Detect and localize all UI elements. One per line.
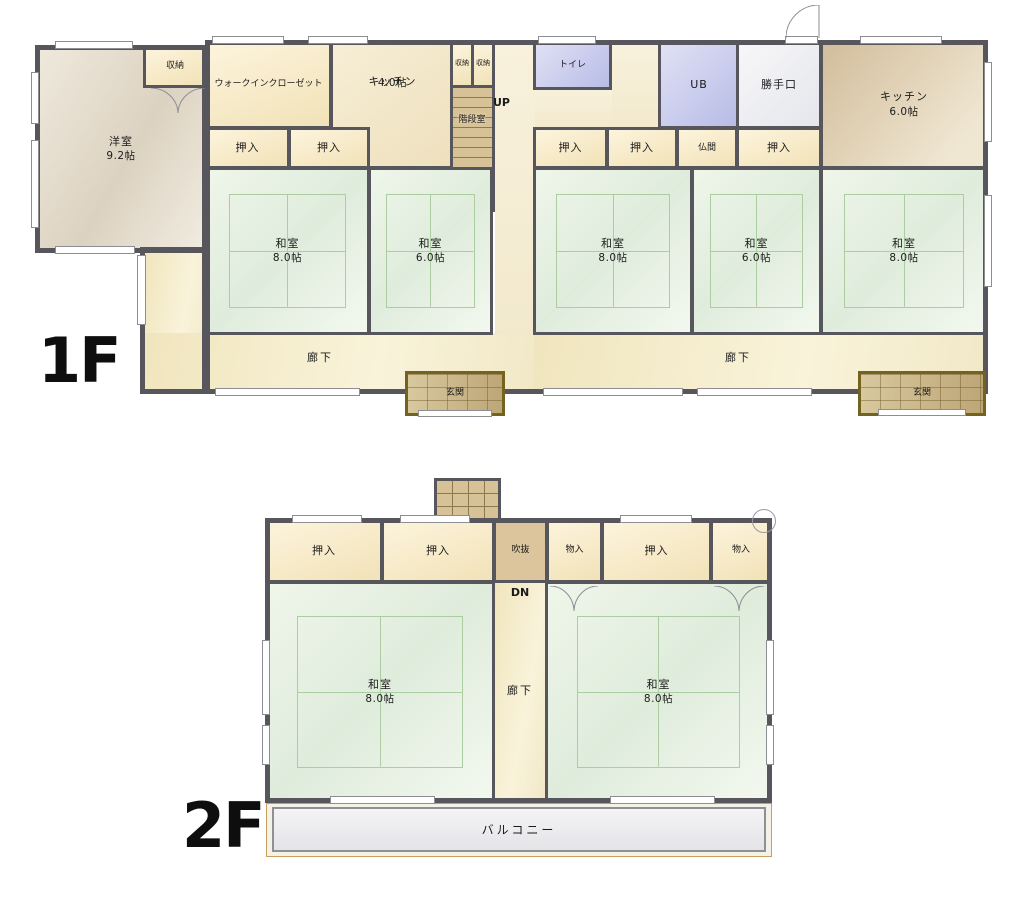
room-name: 収納 bbox=[476, 59, 490, 69]
room-name: 勝手口 bbox=[761, 77, 797, 92]
room-oshiire: 押入 bbox=[601, 518, 712, 583]
dn-label: DN bbox=[495, 586, 545, 599]
room-washitsu: 和室 8.0帖 bbox=[205, 167, 370, 335]
room-oshiire: 押入 bbox=[606, 127, 678, 169]
room-name: 和室 bbox=[419, 236, 443, 251]
balcony-sliding-door bbox=[330, 796, 435, 804]
door-arc bbox=[786, 5, 820, 39]
room-name: 押入 bbox=[630, 140, 654, 155]
room-size: 6.0帖 bbox=[889, 105, 918, 120]
entrance-sliding-door bbox=[878, 409, 966, 416]
room-name: 和室 bbox=[601, 236, 625, 251]
room-shuno-b: 収納 bbox=[471, 40, 495, 88]
room-size: 9.2帖 bbox=[106, 149, 135, 164]
entrance-sliding-door bbox=[418, 410, 492, 417]
room-oshiire: 押入 bbox=[265, 518, 383, 583]
room-name: 押入 bbox=[559, 140, 583, 155]
room-oshiire: 押入 bbox=[288, 127, 370, 169]
window bbox=[215, 388, 360, 396]
room-name: 吹抜 bbox=[510, 544, 530, 557]
room-shuno-top: 収納 bbox=[143, 45, 207, 88]
room-name: 押入 bbox=[426, 543, 450, 558]
room-stairwell bbox=[450, 85, 495, 170]
room-name: 玄関 bbox=[446, 387, 464, 400]
corridor-label: 廊下 bbox=[270, 349, 370, 365]
room-name: 押入 bbox=[645, 543, 669, 558]
room-oshiire: 押入 bbox=[736, 127, 822, 169]
room-toilet: トイレ bbox=[533, 40, 612, 90]
room-fukinuke: 吹抜 bbox=[493, 518, 548, 583]
room-name: 押入 bbox=[317, 140, 341, 155]
room-washitsu: 和室 8.0帖 bbox=[820, 167, 988, 335]
room-washitsu: 和室 8.0帖 bbox=[265, 581, 495, 803]
floor-label-1f: 1F bbox=[38, 330, 120, 392]
balcony: バルコニー bbox=[266, 803, 772, 857]
room-name: UB bbox=[690, 77, 708, 92]
room-name: 和室 bbox=[368, 677, 392, 692]
room-katteguchi: 勝手口 bbox=[736, 40, 822, 129]
window bbox=[212, 36, 284, 44]
window bbox=[543, 388, 683, 396]
hallway-1f-washroom bbox=[610, 43, 660, 129]
window bbox=[292, 515, 362, 523]
room-name: トイレ bbox=[559, 59, 586, 72]
window bbox=[308, 36, 368, 44]
window bbox=[860, 36, 942, 44]
room-name: 洋室 bbox=[109, 134, 133, 149]
corridor-label: 廊下 bbox=[495, 682, 545, 698]
window bbox=[55, 246, 135, 254]
room-size: 8.0帖 bbox=[273, 251, 302, 266]
balcony-floor: バルコニー bbox=[272, 807, 766, 852]
floor-plan: 洋室 9.2帖 収納 ウォークインクローゼット キッチン 4.0帖 収納 収納 … bbox=[0, 0, 1024, 901]
room-size: 8.0帖 bbox=[889, 251, 918, 266]
room-oshiire: 押入 bbox=[205, 127, 290, 169]
corner-marker bbox=[752, 509, 776, 533]
window bbox=[766, 725, 774, 765]
room-monoire: 物入 bbox=[546, 518, 603, 583]
room-name: 和室 bbox=[276, 236, 300, 251]
room-kitchen-6: キッチン 6.0帖 bbox=[820, 40, 988, 169]
window bbox=[766, 640, 774, 715]
room-washitsu: 和室 6.0帖 bbox=[691, 167, 822, 335]
room-name: 物入 bbox=[732, 544, 750, 557]
corridor-label: 廊下 bbox=[688, 349, 788, 365]
stairwell-label: 階段室 bbox=[446, 112, 498, 125]
room-name: 物入 bbox=[565, 544, 583, 557]
window bbox=[984, 195, 992, 287]
door-arc bbox=[549, 586, 599, 612]
hallway-1f-center bbox=[495, 43, 535, 335]
room-name: 玄関 bbox=[913, 387, 931, 400]
room-name: 和室 bbox=[892, 236, 916, 251]
room-name: 押入 bbox=[312, 543, 336, 558]
room-oshiire: 押入 bbox=[533, 127, 608, 169]
room-size: 8.0帖 bbox=[365, 692, 394, 707]
door-arc bbox=[150, 88, 206, 114]
balcony-sliding-door bbox=[610, 796, 715, 804]
hallway-1f-toilet-front bbox=[535, 88, 612, 129]
room-walk-in-closet: ウォークインクローゼット bbox=[205, 40, 332, 129]
room-name: 和室 bbox=[745, 236, 769, 251]
door-arc bbox=[713, 586, 765, 612]
room-size: 6.0帖 bbox=[742, 251, 771, 266]
window bbox=[262, 725, 270, 765]
window bbox=[55, 41, 133, 49]
window bbox=[697, 388, 812, 396]
room-oshiire: 押入 bbox=[381, 518, 495, 583]
room-name: 押入 bbox=[767, 140, 791, 155]
room-washitsu: 和室 8.0帖 bbox=[545, 581, 772, 803]
window bbox=[538, 36, 596, 44]
room-name: キッチン bbox=[880, 89, 928, 104]
room-name: ウォークインクローゼット bbox=[214, 78, 322, 91]
window bbox=[31, 72, 39, 124]
room-size: 6.0帖 bbox=[416, 251, 445, 266]
window bbox=[137, 255, 146, 325]
room-size: 8.0帖 bbox=[644, 692, 673, 707]
room-size: 4.0帖 bbox=[378, 76, 407, 91]
room-butsuma: 仏間 bbox=[676, 127, 738, 169]
room-name: 押入 bbox=[236, 140, 260, 155]
room-unit-bath: UB bbox=[658, 40, 740, 129]
room-name: 仏間 bbox=[698, 142, 716, 155]
floor-label-2f: 2F bbox=[182, 795, 264, 857]
window bbox=[31, 140, 39, 228]
balcony-label: バルコニー bbox=[482, 821, 557, 838]
room-name: 収納 bbox=[455, 59, 469, 69]
window bbox=[984, 62, 992, 142]
room-name: 和室 bbox=[647, 677, 671, 692]
room-name: 収納 bbox=[166, 60, 184, 73]
room-size: 8.0帖 bbox=[598, 251, 627, 266]
window bbox=[262, 640, 270, 715]
room-washitsu: 和室 8.0帖 bbox=[533, 167, 693, 335]
up-label: UP bbox=[493, 96, 533, 109]
window bbox=[620, 515, 692, 523]
room-washitsu: 和室 6.0帖 bbox=[368, 167, 493, 335]
window bbox=[400, 515, 470, 523]
